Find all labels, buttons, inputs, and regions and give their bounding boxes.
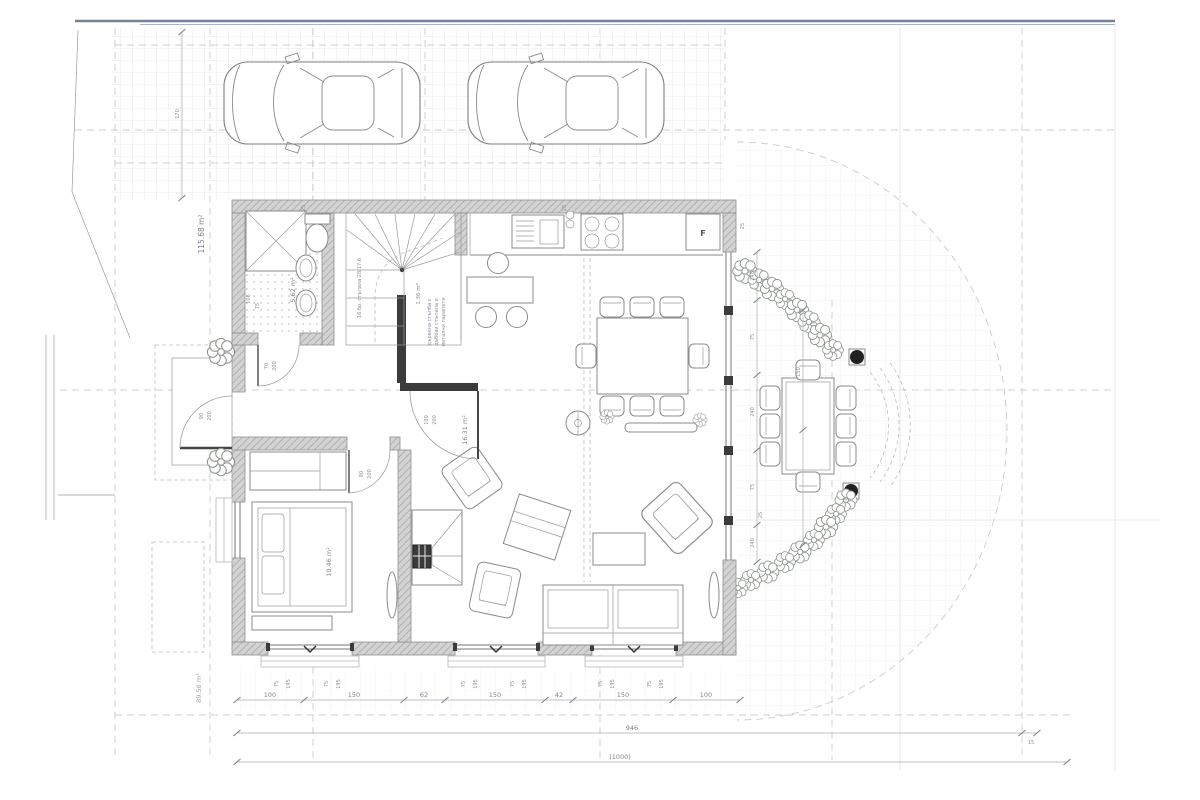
area-label-bathroom: 5.62 m² bbox=[289, 277, 297, 303]
sink bbox=[296, 255, 316, 281]
bedroom: 10.46 m² bbox=[250, 452, 397, 630]
sink bbox=[296, 290, 316, 316]
dining-chair bbox=[630, 297, 654, 317]
sofa bbox=[543, 585, 683, 645]
car-top-view-1 bbox=[224, 53, 420, 153]
dim-label: 75 bbox=[255, 303, 261, 309]
floor-plan-canvas: 89.58 m² bbox=[0, 0, 1200, 800]
stair-spec-note: дъбови стъпала и bbox=[434, 298, 440, 346]
svg-text:170: 170 bbox=[175, 109, 181, 119]
driveway bbox=[112, 28, 724, 200]
armchair bbox=[440, 445, 505, 511]
door-size-label: 90 bbox=[199, 413, 205, 419]
dining-chair bbox=[689, 344, 709, 368]
dim-label: 150 bbox=[489, 691, 501, 699]
kitchen-sink bbox=[512, 211, 574, 248]
mullion-post bbox=[724, 376, 733, 385]
fireplace-stove bbox=[412, 510, 462, 585]
outdoor-chair bbox=[796, 472, 820, 492]
svg-text:150: 150 bbox=[796, 367, 802, 377]
area-label-hall: 16.31 m² bbox=[461, 415, 469, 445]
area-label-site: 115.68 m² bbox=[197, 215, 206, 254]
fence-double-line bbox=[46, 335, 54, 520]
svg-text:195: 195 bbox=[473, 679, 479, 689]
radiator bbox=[709, 572, 719, 618]
fridge-label: F bbox=[700, 229, 705, 238]
dim-label-total: 946 bbox=[626, 724, 638, 732]
dim-label: 15 bbox=[1028, 740, 1034, 746]
double-bed bbox=[252, 502, 352, 612]
window-left bbox=[235, 502, 240, 558]
entrance-door: 90 200 bbox=[155, 338, 235, 480]
wall-left bbox=[232, 448, 245, 502]
window bbox=[448, 643, 545, 667]
wall-bathroom-bottom bbox=[232, 333, 258, 345]
door-size-label: 200 bbox=[207, 411, 213, 421]
garden-area-label: 89.58 m² bbox=[195, 673, 203, 703]
window bbox=[261, 643, 359, 667]
svg-text:75: 75 bbox=[750, 484, 756, 490]
screen-wall-stub bbox=[400, 383, 478, 391]
outdoor-chair bbox=[836, 386, 856, 410]
mullion-post bbox=[724, 446, 733, 455]
toilet bbox=[305, 214, 330, 252]
wall-left bbox=[232, 558, 245, 642]
glazed-wall-right bbox=[726, 252, 731, 560]
svg-text:75: 75 bbox=[274, 681, 280, 687]
svg-text:75: 75 bbox=[324, 681, 330, 687]
door-size-label: 70 bbox=[264, 363, 270, 369]
dim-label: 100 bbox=[700, 691, 712, 699]
stair-spec-note: дървена стълба с bbox=[427, 298, 433, 345]
wall-top bbox=[232, 200, 736, 213]
floor-plan-page: 89.58 m² bbox=[0, 0, 1200, 800]
svg-text:75: 75 bbox=[461, 681, 467, 687]
pillow bbox=[262, 514, 284, 552]
bar-stool bbox=[507, 307, 528, 328]
outdoor-chair bbox=[836, 414, 856, 438]
door-size-label: 100 bbox=[424, 415, 430, 425]
dining-set bbox=[576, 297, 709, 416]
console-table bbox=[625, 423, 697, 432]
bedroom-door: 80 200 bbox=[349, 450, 390, 493]
wall-bedroom-right bbox=[398, 450, 411, 642]
dining-chair bbox=[576, 344, 596, 368]
coffee-table bbox=[593, 533, 645, 565]
kitchen-island bbox=[467, 253, 533, 328]
living-room: 16.31 m² bbox=[412, 410, 719, 645]
outdoor-chair bbox=[760, 386, 780, 410]
wall-bathroom-bottom bbox=[300, 333, 322, 345]
area-label-bedroom: 10.46 m² bbox=[325, 547, 333, 577]
garden-terrace bbox=[728, 142, 1007, 720]
svg-text:240: 240 bbox=[750, 538, 756, 548]
bar-stool bbox=[488, 253, 509, 274]
dim-label: 150 bbox=[617, 691, 629, 699]
faucet-icon bbox=[566, 211, 574, 219]
svg-text:195: 195 bbox=[659, 679, 665, 689]
bathroom-door: 70 200 bbox=[258, 345, 299, 386]
planting-bed-dashed bbox=[152, 542, 204, 652]
dim-label: 106 bbox=[246, 294, 252, 304]
dining-chair bbox=[660, 297, 684, 317]
svg-text:195: 195 bbox=[286, 679, 292, 689]
cooktop bbox=[581, 214, 623, 250]
wall-left bbox=[232, 213, 245, 333]
bathroom: 5.62 m² 106 75 bbox=[245, 211, 330, 333]
door-size-label: 200 bbox=[432, 415, 438, 425]
wall-bedroom-top bbox=[390, 437, 400, 450]
dining-chair bbox=[630, 396, 654, 416]
armchair bbox=[468, 561, 521, 619]
dim-label: 100 bbox=[264, 691, 276, 699]
car-top-view-2 bbox=[468, 53, 664, 153]
outdoor-chair bbox=[760, 442, 780, 466]
plant-icon bbox=[600, 410, 614, 424]
wall-bottom bbox=[232, 642, 268, 655]
svg-text:195: 195 bbox=[610, 679, 616, 689]
bed-bench bbox=[252, 616, 332, 630]
wall-bedroom-top bbox=[232, 437, 347, 450]
dining-chair bbox=[600, 297, 624, 317]
wall-right bbox=[723, 560, 736, 655]
svg-text:75: 75 bbox=[647, 681, 653, 687]
stair-note: 16 бр. стъпала 28/17.6 bbox=[357, 258, 363, 318]
floor-lamp bbox=[566, 411, 590, 435]
svg-text:195: 195 bbox=[336, 679, 342, 689]
armchair bbox=[639, 480, 715, 557]
dim-label: 42 bbox=[555, 691, 563, 699]
svg-text:75: 75 bbox=[750, 334, 756, 340]
wall-bottom bbox=[352, 642, 455, 655]
dim-label-wall: 25 bbox=[301, 205, 307, 211]
dining-chair bbox=[660, 396, 684, 416]
fridge: F bbox=[686, 214, 720, 250]
svg-text:75: 75 bbox=[598, 681, 604, 687]
door-size-label: 200 bbox=[367, 469, 373, 479]
mullion-post bbox=[724, 306, 733, 315]
stair-spec-note: метални парапети bbox=[441, 297, 447, 346]
radiator bbox=[387, 572, 397, 618]
bar-stool bbox=[476, 307, 497, 328]
outdoor-table-top bbox=[786, 382, 830, 470]
dim-label-overall: (1000) bbox=[609, 753, 631, 761]
svg-text:75: 75 bbox=[510, 681, 516, 687]
dim-total-lines: 946 15 (1000) bbox=[234, 724, 1071, 765]
pouf bbox=[503, 494, 570, 560]
door-size-label: 80 bbox=[359, 471, 365, 477]
dim-label-wall: 25 bbox=[562, 205, 568, 211]
outdoor-chair bbox=[836, 442, 856, 466]
wardrobe bbox=[250, 452, 346, 490]
dim-label: 62 bbox=[420, 691, 428, 699]
door-size-label: 200 bbox=[272, 361, 278, 371]
mullion-post bbox=[724, 516, 733, 525]
svg-text:240: 240 bbox=[750, 271, 756, 281]
svg-text:25: 25 bbox=[758, 512, 764, 518]
svg-text:240: 240 bbox=[750, 407, 756, 417]
bush-icon bbox=[207, 338, 234, 365]
screen-wall-dark bbox=[397, 295, 406, 383]
dim-label-wall: 25 bbox=[740, 223, 746, 229]
area-label-stair: 1.36 m² bbox=[415, 283, 422, 305]
pillow bbox=[262, 556, 284, 594]
dining-table bbox=[597, 318, 688, 394]
dim-label: 150 bbox=[348, 691, 360, 699]
svg-text:195: 195 bbox=[522, 679, 528, 689]
outdoor-chair bbox=[760, 414, 780, 438]
windows-bottom bbox=[261, 643, 683, 667]
wall-right bbox=[723, 213, 736, 252]
